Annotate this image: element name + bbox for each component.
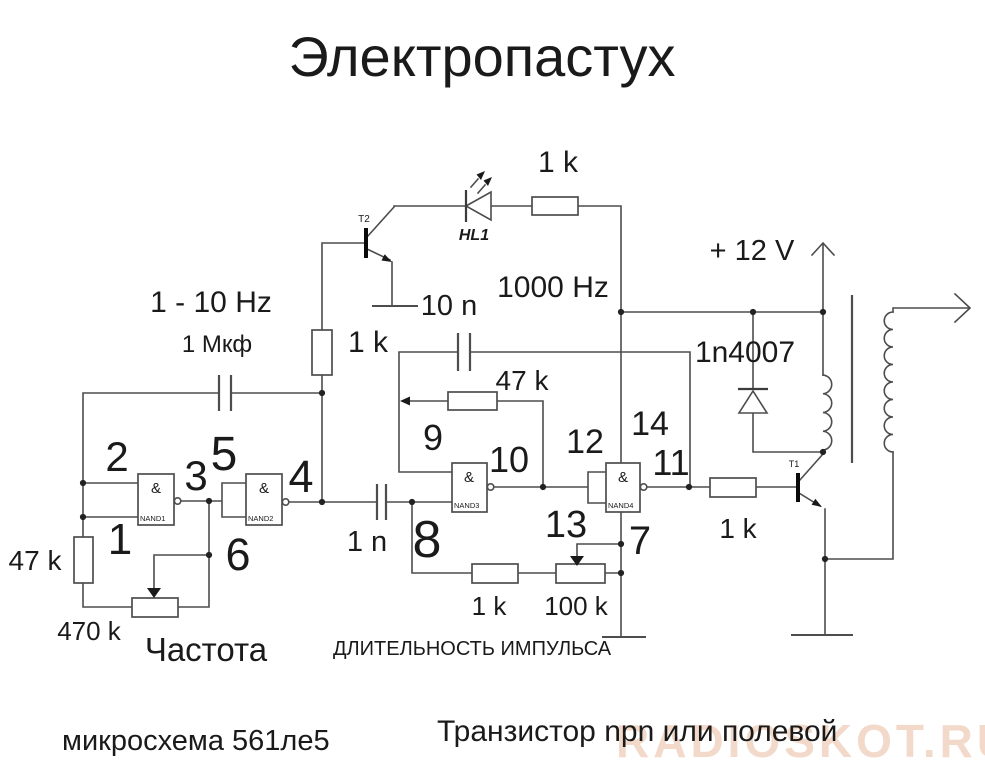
label-c1: 1 Мкф [182, 331, 252, 358]
potentiometer-470k [132, 598, 178, 617]
t1-emitter-arrow-icon [812, 499, 822, 507]
junction-dot [820, 449, 826, 455]
junction-dot [319, 499, 325, 505]
resistor-1k-pulse [472, 564, 518, 583]
label-pulse-caption: ДЛИТЕЛЬНОСТЬ ИМПУЛЬСА [333, 638, 612, 660]
label-c2: 10 n [421, 290, 477, 322]
junction-dot [206, 552, 212, 558]
junction-dot [750, 309, 756, 315]
junction-dot [319, 390, 325, 396]
t1-wires [799, 454, 825, 635]
junction-dot [618, 541, 624, 547]
label-c3: 1 n [347, 526, 387, 558]
label-diode: 1n4007 [695, 336, 795, 369]
pin-label-5: 5 [211, 428, 238, 481]
label-supply: + 12 V [710, 235, 795, 267]
pin-label-10: 10 [489, 439, 529, 480]
circuit-schematic: Электропастух RADIOSKOT.RU 1 k 1 - 10 Hz… [0, 0, 985, 768]
gate-nand3-symbol: & [464, 469, 474, 486]
label-t1: T1 [789, 459, 800, 469]
label-r-feedback: 47 k [496, 365, 550, 396]
pin-label-8: 8 [413, 511, 442, 569]
junction-dot [80, 480, 86, 486]
gate-nand1-symbol: & [151, 480, 161, 497]
label-r-base2: 1 k [348, 326, 389, 359]
pin-label-4: 4 [288, 451, 313, 502]
gate-nand1-label: NAND1 [140, 514, 165, 523]
pin-label-11: 11 [652, 442, 689, 483]
junction-dot [618, 309, 624, 315]
t2-emitter-arrow-icon [382, 254, 393, 262]
capacitor-c2-icon [458, 333, 470, 371]
feedback-left-arrow-icon [400, 397, 410, 406]
junction-dot [820, 309, 826, 315]
pin-label-1: 1 [108, 515, 132, 564]
note-chip: микросхема 561ле5 [62, 725, 330, 757]
resistor-47k-left [74, 537, 93, 583]
junction-dot [80, 514, 86, 520]
led-branch-wires [471, 179, 621, 463]
label-r-base1: 1 k [719, 513, 757, 544]
resistor-1k-t2base [312, 330, 332, 375]
resistor-47k-feedback [448, 392, 497, 410]
diode-triangle-icon [739, 391, 767, 413]
junction-dot [686, 484, 692, 490]
gate-nand2-symbol: & [259, 480, 269, 497]
secondary-coil-icon [884, 312, 893, 452]
gate-nand4-bubble [640, 484, 646, 490]
junction-dot [409, 499, 415, 505]
led-triangle-icon [466, 192, 491, 220]
label-pot-freq: 470 k [57, 616, 122, 646]
label-freq-out: 1000 Hz [497, 271, 609, 304]
pin-label-14: 14 [631, 405, 669, 443]
note-transistor: Транзистор npn или полевой [437, 715, 837, 748]
junction-dot [540, 484, 546, 490]
label-r-pulse: 1 k [472, 591, 508, 621]
label-r-led: 1 k [538, 146, 579, 179]
diode-branch-wires [753, 312, 823, 452]
transformer-wires [823, 294, 970, 559]
gate-nand2-label: NAND2 [248, 514, 273, 523]
resistor-1k-t1base [710, 478, 756, 497]
pin-label-3: 3 [184, 452, 207, 499]
potentiometer-100k [556, 564, 605, 583]
gate-nand1-bubble [174, 498, 180, 504]
label-freq-caption: Частота [145, 631, 268, 668]
pin-label-9: 9 [423, 417, 443, 458]
label-r-left: 47 k [9, 545, 63, 576]
label-pot-pulse: 100 k [544, 591, 609, 621]
primary-coil-icon [823, 375, 832, 452]
junction-dot [618, 570, 624, 576]
page-title: Электропастух [288, 25, 675, 88]
pin-label-13: 13 [545, 504, 587, 546]
pin-label-7: 7 [629, 519, 651, 563]
pin-label-2: 2 [105, 433, 128, 480]
capacitor-c3-icon [377, 484, 386, 520]
resistor-1k-led [532, 197, 578, 215]
label-freq-range: 1 - 10 Hz [150, 286, 272, 319]
wires [83, 179, 970, 637]
pin-label-6: 6 [225, 529, 250, 580]
gate-nand3-label: NAND3 [454, 501, 479, 510]
pin-label-12: 12 [566, 423, 604, 461]
gate-nand3-bubble [487, 484, 493, 490]
gate-nand4-label: NAND4 [608, 501, 633, 510]
label-led: HL1 [459, 227, 489, 244]
gate-nand4-symbol: & [618, 469, 628, 486]
junction-dot [822, 556, 828, 562]
pot470k-wiper-arrow-icon [147, 588, 161, 598]
capacitor-c1-icon [219, 375, 231, 411]
label-t2: T2 [358, 214, 370, 225]
schematic-page: Электропастух RADIOSKOT.RU 1 k 1 - 10 Hz… [0, 0, 985, 768]
